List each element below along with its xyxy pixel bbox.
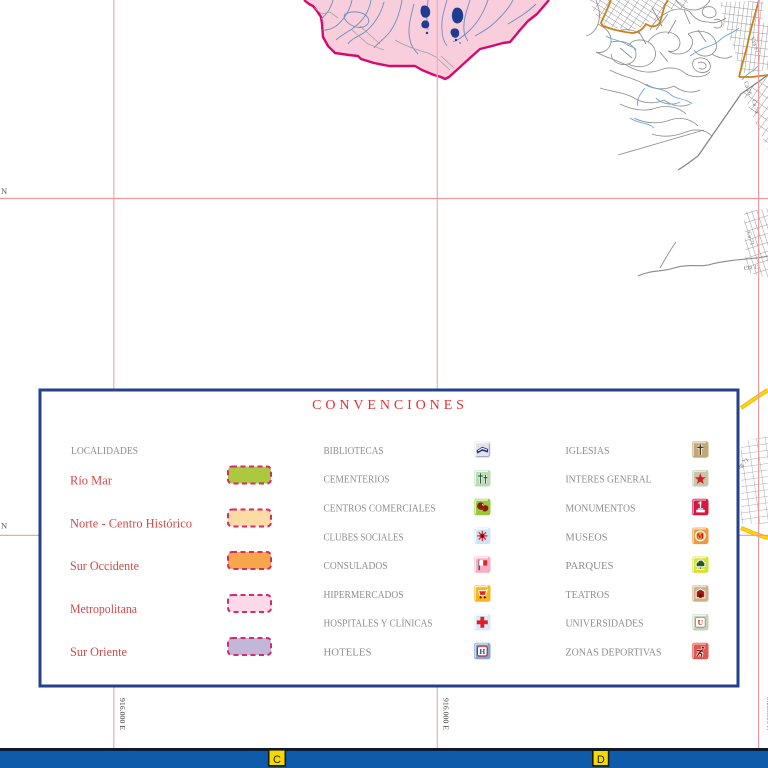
svg-text:M: M [697, 532, 704, 541]
svg-text:Río Mar: Río Mar [70, 473, 113, 488]
svg-text:BIBLIOTECAS: BIBLIOTECAS [324, 446, 384, 457]
svg-text:CONSULADOS: CONSULADOS [324, 561, 388, 572]
svg-text:916.000 E: 916.000 E [442, 698, 451, 730]
svg-text:CENTROS COMERCIALES: CENTROS COMERCIALES [324, 504, 436, 515]
svg-text:Norte - Centro Histórico: Norte - Centro Histórico [70, 516, 192, 531]
svg-text:N: N [1, 521, 7, 531]
svg-text:Sur Oriente: Sur Oriente [70, 644, 127, 659]
svg-text:Metropolitana: Metropolitana [70, 601, 137, 616]
svg-text:HIPERMERCADOS: HIPERMERCADOS [324, 590, 404, 601]
svg-text:LOCALIDADES: LOCALIDADES [71, 446, 138, 457]
svg-text:U: U [698, 618, 704, 627]
svg-text:HOSPITALES Y CLÍNICAS: HOSPITALES Y CLÍNICAS [324, 618, 433, 630]
svg-text:CEMENTERIOS: CEMENTERIOS [324, 475, 390, 486]
svg-text:D: D [597, 754, 605, 766]
svg-text:CLUBES SOCIALES: CLUBES SOCIALES [324, 532, 404, 543]
svg-text:CONVENCIONES: CONVENCIONES [312, 398, 468, 413]
svg-text:MONUMENTOS: MONUMENTOS [566, 504, 636, 515]
svg-text:Sur Occidente: Sur Occidente [70, 558, 139, 573]
svg-text:C: C [273, 754, 281, 766]
svg-text:IGLESIAS: IGLESIAS [566, 446, 610, 457]
svg-text:TEATROS: TEATROS [566, 590, 610, 601]
svg-text:H: H [479, 647, 485, 656]
svg-text:HOTELES: HOTELES [324, 648, 372, 659]
svg-text:ZONAS DEPORTIVAS: ZONAS DEPORTIVAS [566, 648, 662, 659]
svg-text:INTERES GENERAL: INTERES GENERAL [566, 475, 652, 486]
svg-text:UNIVERSIDADES: UNIVERSIDADES [566, 619, 644, 630]
svg-text:N: N [1, 186, 7, 196]
svg-text:PARQUES: PARQUES [566, 561, 614, 572]
svg-text:916.000 E: 916.000 E [118, 698, 127, 730]
svg-text:MUSEOS: MUSEOS [566, 532, 608, 543]
